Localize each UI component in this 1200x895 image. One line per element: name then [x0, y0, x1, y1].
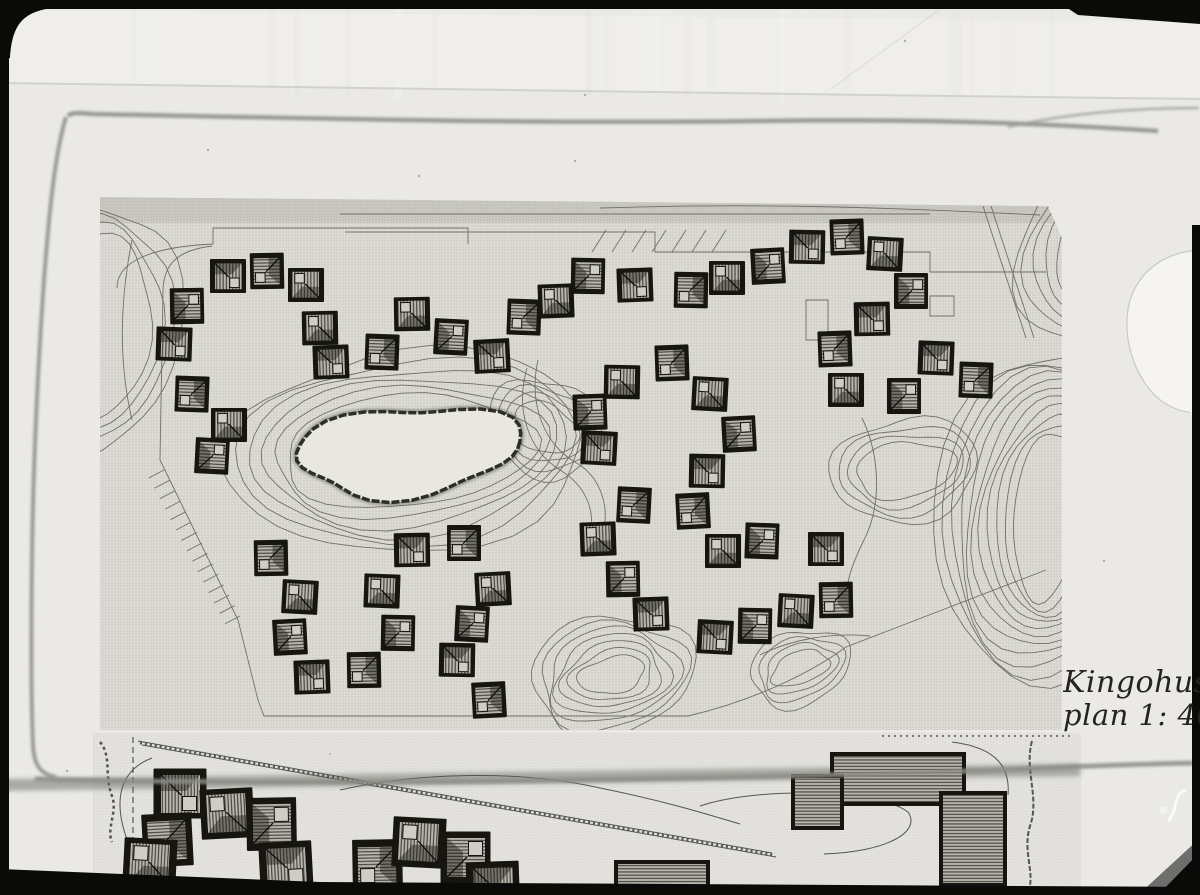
paper-streak [605, 10, 615, 99]
house-courtyard [291, 625, 301, 635]
frame-top [0, 0, 1200, 9]
house-marker [272, 618, 308, 656]
paper-streak [971, 10, 974, 92]
house-marker [744, 522, 779, 559]
house-courtyard [218, 413, 228, 423]
paper-streak [394, 10, 402, 99]
house-courtyard [764, 530, 774, 540]
house-courtyard [740, 422, 750, 432]
building-block [793, 776, 842, 828]
house-marker [391, 816, 447, 869]
house-courtyard [309, 316, 319, 326]
house-courtyard [274, 807, 288, 821]
house-courtyard [824, 351, 834, 361]
paper-streak [267, 10, 274, 92]
house-courtyard [600, 450, 610, 460]
caption-scale: plan 1: 40 [1063, 699, 1200, 732]
paper-streak [1049, 10, 1054, 97]
house-courtyard [709, 473, 719, 483]
house-courtyard [828, 551, 838, 561]
house-courtyard [699, 382, 709, 392]
house-courtyard [230, 278, 240, 288]
house-marker [819, 582, 854, 619]
house-marker [571, 258, 606, 295]
house-marker [381, 615, 416, 652]
house-courtyard [679, 292, 689, 302]
house-courtyard [333, 364, 343, 374]
paper-streak [312, 10, 315, 88]
white-scratch-dot [1159, 806, 1167, 814]
house-courtyard [210, 797, 225, 812]
paper-streak [821, 10, 826, 92]
paper-streak [292, 10, 300, 94]
house-courtyard [469, 842, 483, 856]
paper-streak [132, 10, 135, 90]
house-marker [174, 375, 209, 412]
house-courtyard [214, 445, 224, 455]
paper-streak [684, 10, 692, 101]
house-courtyard [189, 295, 199, 305]
house-marker [616, 486, 652, 524]
paper-streak [633, 10, 640, 97]
house-courtyard [637, 287, 647, 297]
house-marker [604, 365, 641, 400]
frame-left [0, 55, 9, 895]
house-courtyard [134, 846, 149, 861]
house-marker [709, 261, 745, 295]
paper-streak [727, 10, 729, 97]
house-marker [777, 593, 815, 629]
house-marker [293, 659, 330, 694]
house-courtyard [452, 545, 462, 555]
house-courtyard [824, 602, 834, 612]
house-courtyard [586, 528, 596, 538]
house-marker [887, 378, 921, 414]
house-marker [705, 534, 741, 568]
house-courtyard [590, 265, 600, 275]
house-marker [894, 273, 928, 309]
house-courtyard [371, 579, 381, 589]
upper-site-plan [10, 133, 1193, 743]
house-marker [347, 652, 382, 689]
house-marker [454, 605, 490, 643]
house-courtyard [716, 639, 726, 649]
dust-speck [66, 770, 68, 772]
house-marker [211, 408, 247, 442]
house-marker [789, 230, 826, 265]
paper-streak [650, 10, 660, 95]
house-courtyard [682, 513, 692, 523]
house-courtyard [255, 273, 265, 283]
house-marker [439, 643, 476, 678]
house-courtyard [459, 662, 469, 672]
caption-title: Kingohuse [1063, 666, 1200, 699]
house-marker [696, 619, 734, 655]
house-courtyard [295, 273, 305, 283]
house-marker [170, 288, 205, 325]
house-courtyard [400, 622, 410, 632]
house-marker [447, 525, 481, 561]
house-courtyard [289, 585, 299, 595]
paper-streak [663, 10, 669, 97]
house-marker [580, 430, 618, 466]
house-courtyard [494, 357, 504, 367]
house-marker [616, 267, 653, 302]
house-marker [606, 561, 641, 598]
house-marker [721, 415, 757, 453]
frame-right [1192, 225, 1200, 895]
paper-streak [526, 10, 535, 92]
house-marker [829, 218, 864, 255]
paper-streak [948, 10, 953, 95]
house-courtyard [314, 679, 324, 689]
dust-speck [584, 94, 586, 96]
house-marker [364, 333, 399, 370]
house-marker [808, 532, 844, 566]
lower-site-plan [0, 733, 1186, 895]
paper-streak [149, 10, 155, 93]
paper-streak [302, 10, 308, 92]
house-courtyard [653, 616, 663, 626]
paper-streak [878, 10, 883, 91]
paper-streak [592, 10, 596, 97]
house-courtyard [937, 360, 947, 370]
house-courtyard [874, 242, 884, 252]
house-marker [579, 521, 616, 556]
house-courtyard [712, 539, 722, 549]
house-courtyard [906, 385, 916, 395]
house-courtyard [478, 702, 488, 712]
house-marker [302, 311, 339, 346]
house-courtyard [716, 266, 726, 276]
house-marker [312, 344, 349, 379]
house-courtyard [757, 615, 767, 625]
paper-streak [432, 10, 437, 93]
house-courtyard [544, 290, 554, 300]
house-marker [689, 454, 726, 489]
paper-streak [801, 10, 804, 98]
house-marker [210, 259, 246, 293]
house-marker [572, 393, 607, 430]
house-courtyard [370, 353, 380, 363]
house-courtyard [352, 672, 362, 682]
house-marker [394, 297, 431, 332]
house-courtyard [183, 797, 197, 811]
house-courtyard [964, 381, 974, 391]
dust-speck [1103, 560, 1105, 562]
paper-streak [706, 10, 715, 88]
paper-streak [345, 10, 350, 99]
house-marker [674, 272, 709, 309]
house-courtyard [625, 568, 635, 578]
paper-streak [447, 10, 456, 94]
dust-speck [418, 175, 420, 177]
house-courtyard [414, 552, 424, 562]
paper-streak [484, 10, 489, 94]
house-marker [473, 338, 511, 374]
house-courtyard [836, 239, 846, 249]
house-marker [654, 344, 689, 381]
house-marker [254, 540, 289, 577]
house-marker [433, 318, 469, 356]
paper-streak [953, 10, 960, 99]
dust-speck [574, 160, 576, 162]
house-marker [363, 573, 400, 608]
house-courtyard [180, 395, 190, 405]
house-courtyard [661, 365, 671, 375]
house-marker [281, 579, 319, 615]
house-courtyard [481, 578, 491, 588]
house-courtyard [835, 378, 845, 388]
house-marker [817, 330, 852, 367]
house-marker [474, 571, 512, 607]
house-marker [750, 247, 786, 285]
house-courtyard [785, 599, 795, 609]
building-block [941, 793, 1005, 885]
house-courtyard [361, 869, 375, 883]
house-marker [471, 681, 507, 719]
plan-caption: Kingohuse plan 1: 40 [1063, 666, 1200, 736]
house-courtyard [259, 560, 269, 570]
house-courtyard [622, 506, 632, 516]
house-marker [854, 302, 891, 337]
house-marker [506, 298, 541, 335]
house-marker [194, 437, 230, 475]
house-marker [828, 373, 864, 407]
house-marker [288, 268, 324, 302]
site-plan-drawing [0, 0, 1200, 895]
house-marker [958, 361, 993, 398]
house-courtyard [403, 825, 418, 840]
dust-speck [904, 40, 906, 42]
house-marker [738, 608, 773, 645]
house-courtyard [453, 326, 463, 336]
house-courtyard [474, 613, 484, 623]
house-marker [537, 283, 574, 318]
house-marker [394, 533, 431, 568]
house-courtyard [175, 346, 185, 356]
house-marker [691, 376, 729, 412]
house-courtyard [592, 400, 602, 410]
paper-streak [781, 10, 790, 90]
house-marker [154, 769, 207, 819]
paper-streak [1002, 10, 1010, 96]
house-courtyard [913, 280, 923, 290]
house-courtyard [401, 302, 411, 312]
house-marker [917, 340, 954, 375]
house-courtyard [512, 318, 522, 328]
house-marker [250, 253, 285, 290]
archive-photo: Kingohuse plan 1: 40 [0, 0, 1200, 895]
house-marker [155, 326, 192, 361]
house-courtyard [611, 370, 621, 380]
house-courtyard [769, 254, 779, 264]
dust-speck [207, 149, 209, 151]
house-courtyard [809, 249, 819, 259]
house-marker [675, 492, 711, 530]
house-marker [632, 596, 669, 631]
house-courtyard [874, 321, 884, 331]
house-marker [866, 236, 904, 272]
